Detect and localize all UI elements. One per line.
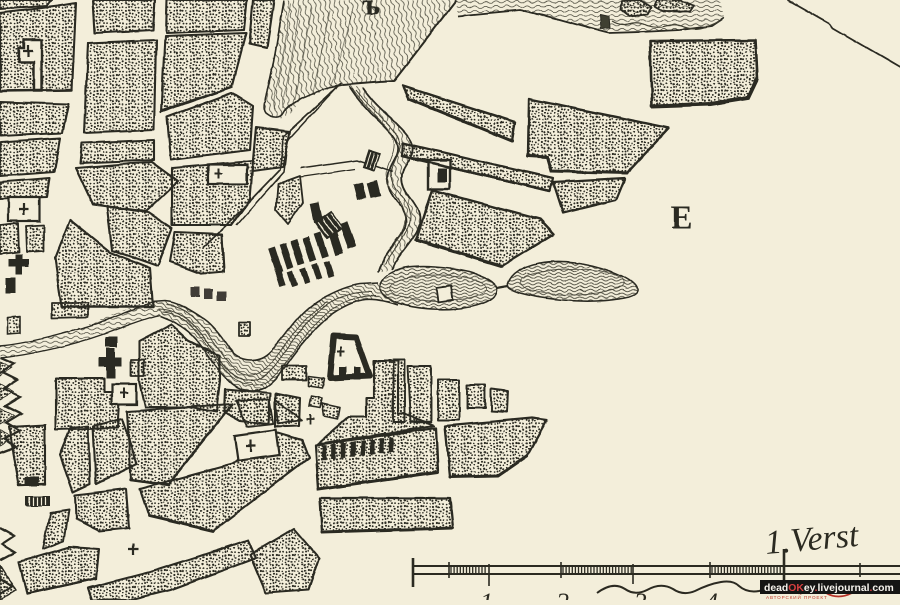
- svg-text:1: 1: [480, 588, 493, 600]
- svg-text:ъ: ъ: [362, 0, 380, 21]
- svg-text:2: 2: [556, 588, 569, 600]
- svg-text:deadOKey.livejournal.com: deadOKey.livejournal.com: [764, 583, 894, 594]
- svg-text:4: 4: [705, 588, 718, 600]
- svg-text:E: E: [671, 200, 693, 236]
- svg-text:3: 3: [633, 588, 647, 600]
- svg-text:АВТОРСКИЙ ПРОЕКТ: АВТОРСКИЙ ПРОЕКТ: [766, 593, 828, 600]
